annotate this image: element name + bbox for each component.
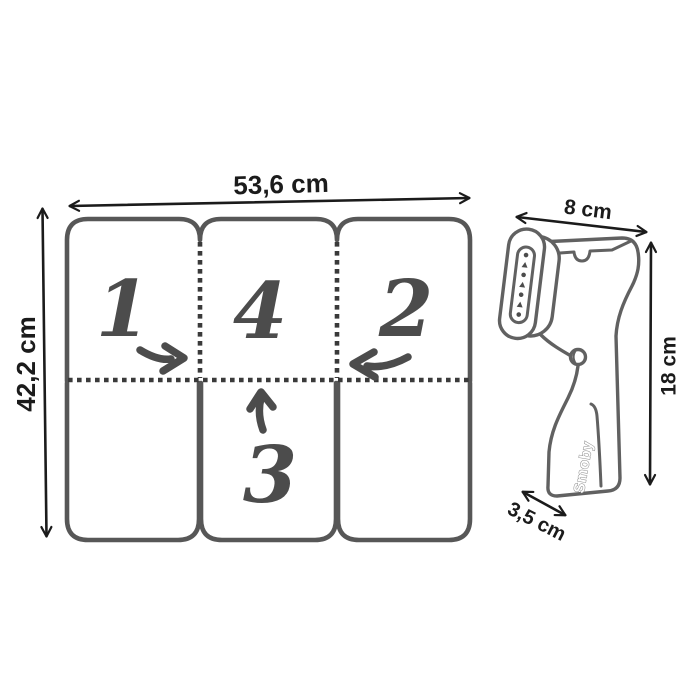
panel-number-top-left: 1: [96, 264, 150, 355]
board-width-label: 53,6 cm: [233, 168, 329, 200]
steamer-height-arrow: [650, 243, 651, 484]
board-height-dimension: 42,2 cm: [11, 209, 46, 536]
steamer-depth-label: 3,5 cm: [504, 498, 569, 546]
steamer-depth-dimension: 3,5 cm: [504, 492, 569, 546]
board-panel-bottom-left: [67, 383, 199, 540]
board-height-label: 42,2 cm: [11, 316, 41, 411]
board-panel-bottom-right: [338, 383, 470, 540]
steam-brush-diagram: Smoby 8 cm 18 cm 3,5 cm: [497, 196, 680, 546]
panel-number-top-middle: 4: [233, 266, 287, 357]
product-dimensions-diagram: 1 4 2 3 53,6 cm 42,2 cm: [0, 0, 700, 700]
panel-number-bottom-middle: 3: [243, 430, 297, 521]
steamer-width-dimension: 8 cm: [517, 196, 646, 232]
steamer-height-dimension: 18 cm: [650, 243, 680, 484]
dimensions-diagram-svg: 1 4 2 3 53,6 cm 42,2 cm: [0, 0, 700, 700]
steamer-width-label: 8 cm: [563, 196, 613, 225]
board-height-arrow: [43, 209, 47, 536]
panel-number-top-right: 2: [378, 264, 433, 355]
board-width-dimension: 53,6 cm: [70, 168, 469, 206]
trigger-button: [571, 350, 586, 365]
steamer-height-label: 18 cm: [657, 336, 680, 396]
ironing-board-diagram: 1 4 2 3 53,6 cm 42,2 cm: [11, 168, 470, 540]
